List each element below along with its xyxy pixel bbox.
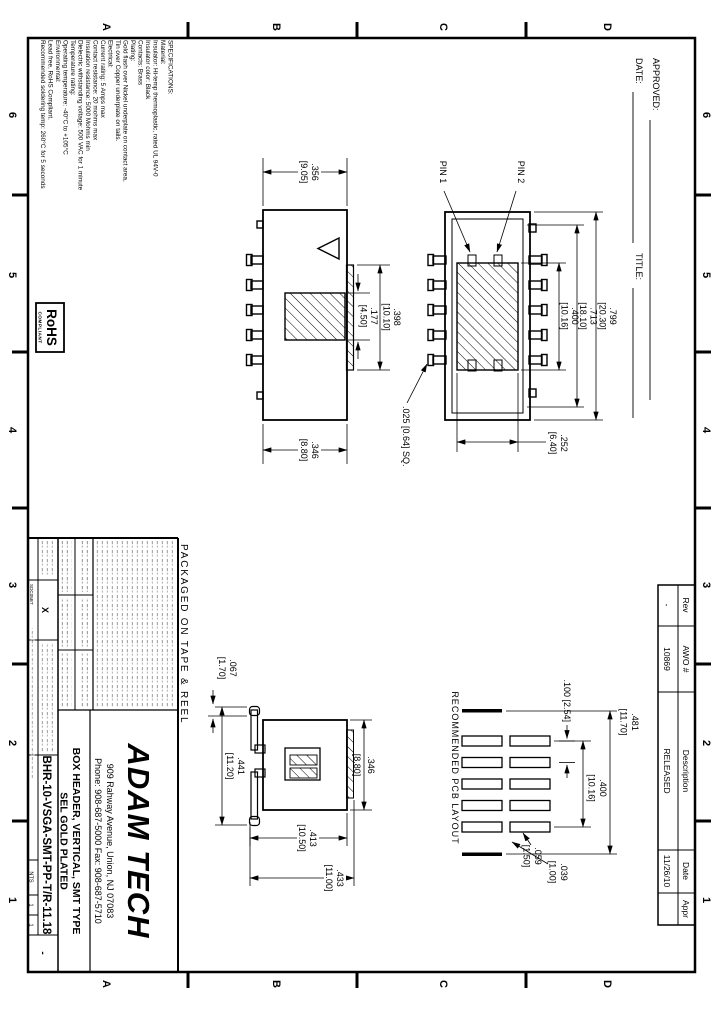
rohs-title: RoHS: [44, 309, 59, 346]
zone-number: 2: [700, 740, 712, 746]
spec-line: Lead free, RoHS Compliant.: [47, 40, 54, 120]
dim-step-in: .398: [392, 308, 402, 326]
zone-number: 5: [700, 272, 712, 278]
dim-leads-in: .441: [236, 757, 246, 775]
polarity-triangle-mark: [318, 238, 339, 259]
description-header: Description: [681, 750, 691, 793]
company-address: 909 Rahway Avenue, Union, NJ 07083: [105, 764, 115, 918]
dim-span-in: .400: [570, 307, 580, 325]
cad-code: SDC05BT: [29, 584, 34, 605]
revision-table: Rev AWO # Description Date Appr - 10869 …: [658, 585, 695, 925]
awo-value: 10869: [662, 647, 672, 671]
fine-print-area: [96, 541, 175, 707]
zone-number: 4: [700, 427, 712, 434]
spec-line: Tin over Copper underplate on tails.: [114, 40, 121, 142]
awo-header: AWO #: [681, 645, 691, 672]
date-value: 11/26/10: [662, 855, 672, 888]
dim-pin-size: .025 [0.64] SQ.: [401, 406, 411, 467]
dim-leads-mm: [11.20]: [225, 753, 235, 780]
zone-letter: D: [601, 23, 613, 31]
zone-letter: D: [601, 980, 613, 988]
zone-number: 3: [6, 582, 18, 588]
sheet-cell-2: 1: [28, 923, 34, 926]
dim-width-top-mm: [9.05]: [299, 161, 309, 184]
dim-span-mm: [10.16]: [560, 302, 570, 330]
drawing-canvas: 6 5 4 3 2 1 6 5 4 3 2 1 D C B A D C B A …: [0, 0, 720, 1012]
approved-label: APPROVED:: [651, 58, 661, 111]
approval-block: APPROVED: DATE: TITLE:: [633, 58, 661, 418]
packaging-note: PACKAGED ON TAPE & REEL: [178, 544, 189, 724]
spec-line: Temperature rating:: [69, 40, 76, 96]
tolerance-mark: X: [40, 607, 50, 613]
dim-slot-mm: [6.40]: [548, 432, 558, 455]
dim-contact-in: .177: [369, 307, 379, 325]
dim-body-in: .713: [589, 307, 599, 325]
pcb-dim-gap-in: .039: [559, 863, 569, 881]
scale-cell: NTS: [28, 871, 34, 882]
title-block: ADAM TECH 909 Rahway Avenue, Union, NJ 0…: [28, 538, 179, 972]
spec-line: Insulator: Hi-temp thermoplastic, rated …: [152, 40, 159, 177]
dim-width-bottom-mm: [8.80]: [299, 439, 309, 462]
pcb-layout: .481 [11.70] .400 [10.16] .100 [2.54] .0…: [450, 679, 640, 883]
spec-line: Contact resistance: 20 mohms max: [92, 40, 99, 141]
rev-header: Rev: [681, 597, 691, 613]
zone-letter: C: [437, 23, 449, 31]
dim-overall-mm: [20.30]: [598, 302, 608, 330]
zone-letter: B: [270, 23, 282, 31]
zone-letter: C: [437, 980, 449, 988]
rev-cell: -: [37, 951, 48, 954]
zone-number: 4: [6, 427, 18, 434]
pcb-layout-title: RECOMMENDED PCB LAYOUT: [450, 691, 460, 844]
zone-number: 1: [6, 897, 18, 903]
dim-width-bottom-in: .346: [310, 441, 320, 459]
date-label: DATE:: [634, 58, 644, 84]
spec-line: Operating temperature: -40°C to +105°C: [62, 40, 70, 155]
sheet-cell-1: 1: [28, 903, 34, 906]
dim-height-in: .413: [308, 829, 318, 847]
zone-letter: A: [100, 980, 112, 988]
pcb-dim-span-mm: [10.16]: [587, 774, 597, 802]
zone-number: 6: [700, 112, 712, 118]
spec-line: Plating:: [129, 40, 136, 62]
dim-height-mm: [10.50]: [297, 824, 307, 852]
spec-line: Recommended soldering temp: 260°C for 5 …: [39, 40, 47, 189]
rohs-subtitle: COMPLIANT: [37, 311, 43, 343]
spec-line: Gold flash over Nickel underplate on con…: [122, 40, 129, 182]
spec-line: Dielectric withstanding voltage: 500 VAC…: [77, 40, 84, 191]
zone-number: 5: [6, 272, 18, 278]
dim-total-in: .433: [335, 869, 345, 887]
dim-foot-in: .067: [228, 659, 238, 677]
pcb-dim-gap-mm: [1.00]: [548, 861, 558, 884]
spec-line: Current rating: 5 Amps max: [99, 40, 106, 119]
zone-number: 3: [700, 582, 712, 588]
zone-number: 6: [6, 112, 18, 118]
plan-view: PIN 2 PIN 1 .799 [20.30] .713 [18.10] .4…: [401, 161, 618, 467]
zone-letter: A: [100, 23, 112, 31]
spec-line: Electrical:: [107, 40, 114, 68]
dim-overall-in: .799: [608, 307, 618, 325]
dim-step-mm: [10.10]: [382, 303, 392, 331]
pcb-dim-pitch: .100 [2.54]: [562, 679, 572, 722]
pin2-label: PIN 2: [516, 161, 526, 184]
title-label: TITLE:: [634, 253, 644, 280]
company-logo: ADAM TECH: [121, 743, 156, 939]
dim-endbody-mm: [8.80]: [352, 754, 362, 777]
pcb-dim-outer-in: .481: [630, 713, 640, 731]
spec-line: Material:: [159, 40, 166, 65]
zone-number: 2: [6, 740, 18, 746]
zone-number: 1: [700, 897, 712, 903]
pin1-label: PIN 1: [438, 161, 448, 184]
end-view: .346 [8.80] .441 [11.20] .067 [1.70] .41…: [208, 657, 376, 897]
rohs-compliant-icon: RoHS COMPLIANT: [36, 303, 64, 352]
spec-line: Contacts: Brass: [137, 40, 144, 85]
spec-line: Environmental:: [54, 40, 61, 83]
zone-letter: B: [270, 980, 282, 988]
product-title: BOX HEADER, VERTICAL, SMT TYPE: [70, 748, 82, 935]
dim-total-mm: [11.00]: [324, 865, 334, 892]
description-value: RELEASED: [662, 748, 672, 793]
dim-width-top-in: .356: [310, 163, 320, 181]
part-number: BHR-10-VSGA-SMT-PP-T/R-11.18: [40, 756, 52, 936]
specifications: SPECIFICATIONS: Material: Insulator: Hi-…: [39, 40, 174, 191]
pcb-dim-padwidth-mm: [1.50]: [522, 845, 532, 868]
rev-value: -: [662, 604, 672, 607]
company-phone: Phone: 908-687-5000 Fax: 908-687-5710: [93, 758, 103, 924]
appr-header: Appr: [681, 900, 691, 918]
dim-contact-mm: [4.50]: [359, 305, 369, 328]
spec-line: Insulation resistance: 5000 Mohms min: [84, 40, 91, 151]
dim-foot-mm: [1.70]: [217, 657, 227, 680]
pcb-dim-outer-mm: [11.70]: [619, 709, 629, 736]
side-view: .356 [9.05] .346 [8.80] .398 [10.10] .17…: [247, 155, 403, 467]
date-header: Date: [681, 862, 691, 880]
spec-line: Insulator color: Black: [144, 40, 151, 100]
product-subtitle: SEL GOLD PLATED: [58, 792, 70, 890]
dim-slot-in: .252: [559, 434, 569, 452]
drawing-sheet: 6 5 4 3 2 1 6 5 4 3 2 1 D C B A D C B A …: [0, 0, 720, 1012]
spec-line: SPECIFICATIONS:: [167, 40, 174, 95]
dim-endbody-in: .346: [366, 756, 376, 774]
pcb-dim-span-in: .400: [598, 779, 608, 797]
